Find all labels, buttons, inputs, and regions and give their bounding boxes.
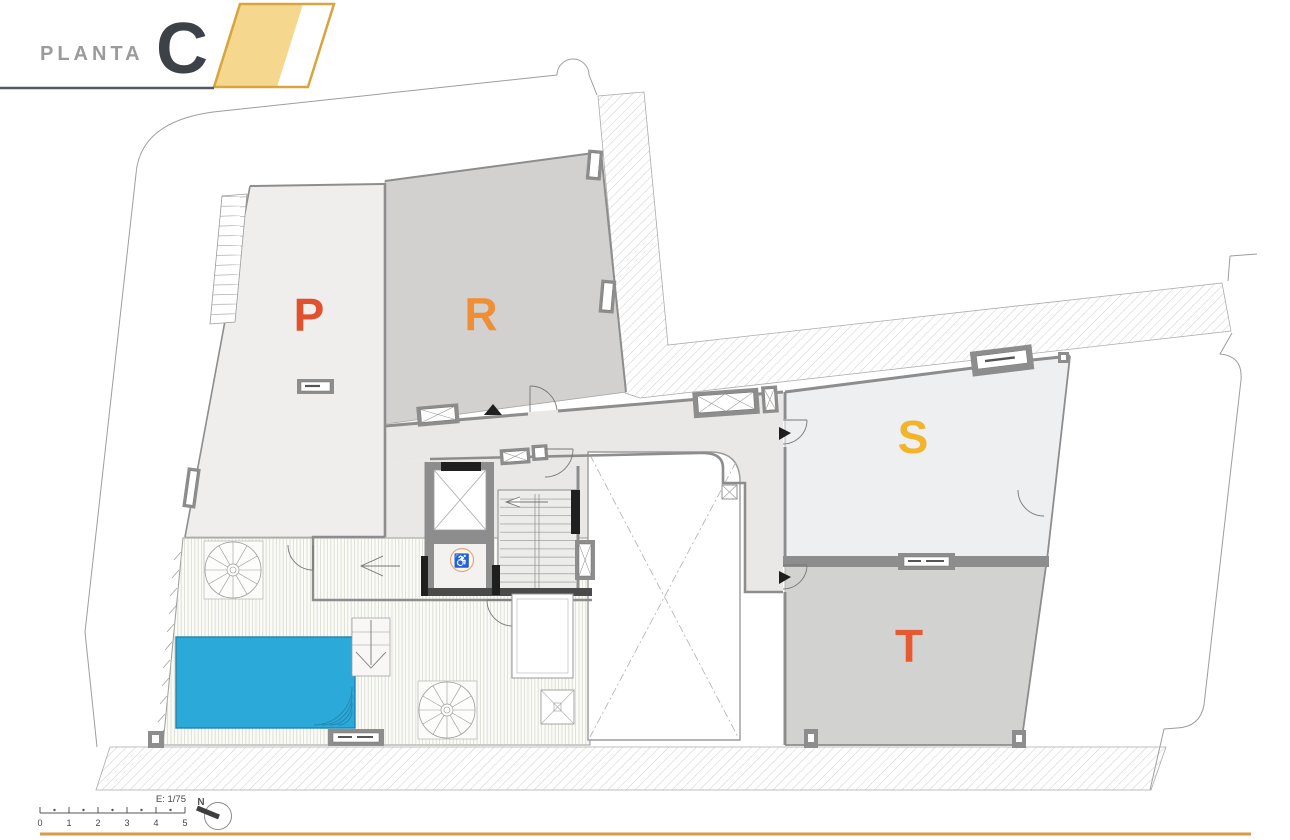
skylight — [541, 690, 574, 724]
unit-r-region — [385, 152, 626, 424]
page-title: PLANTA — [40, 43, 144, 65]
unit-label-r: R — [464, 288, 497, 340]
scale-bar: 0 1 2 3 4 5 E: 1/75 — [37, 794, 187, 828]
wheelchair-glyph: ♿ — [454, 553, 470, 568]
scale-tick-5: 5 — [182, 818, 187, 828]
scale-label: E: 1/75 — [156, 794, 186, 805]
unit-label-t: T — [895, 620, 923, 672]
scale-tick-3: 3 — [124, 818, 129, 828]
floor-plan-page: PLANTA C — [0, 0, 1290, 840]
patio-lightwell — [588, 452, 740, 740]
unit-p-region — [185, 184, 385, 537]
neighbor-building-hatch — [598, 92, 1231, 398]
planter — [512, 594, 573, 678]
deck-small-stair — [352, 618, 390, 676]
floor-letter: C — [156, 9, 208, 89]
unit-label-p: P — [294, 289, 325, 341]
scale-tick-2: 2 — [95, 818, 100, 828]
scale-tick-1: 1 — [66, 818, 71, 828]
pool — [176, 637, 355, 728]
north-arrow: N — [197, 797, 232, 830]
header: PLANTA C — [0, 4, 334, 89]
scale-tick-0: 0 — [37, 818, 42, 828]
floor-plan-drawing: PLANTA C — [0, 0, 1290, 840]
street-hatch-band — [96, 747, 1166, 790]
unit-label-s: S — [898, 411, 929, 463]
spiral-stair-upper — [204, 541, 263, 599]
north-label: N — [197, 797, 204, 808]
scale-tick-4: 4 — [153, 818, 158, 828]
spiral-stair-lower — [418, 681, 477, 739]
